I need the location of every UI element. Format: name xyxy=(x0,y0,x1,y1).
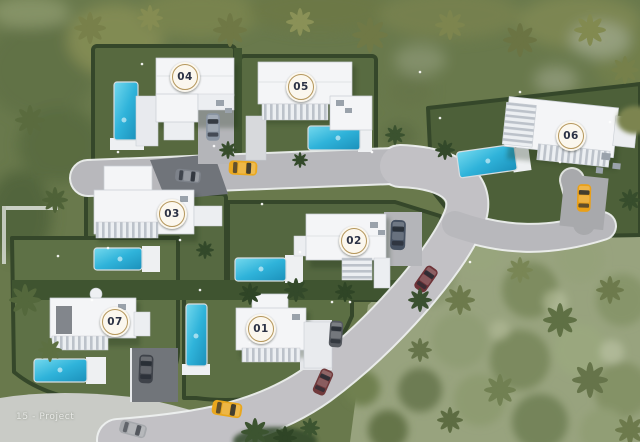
villa-badge-05-number: 05 xyxy=(293,82,308,93)
villa-badge-06: 06 xyxy=(556,121,586,151)
villa-badge-07: 07 xyxy=(100,307,130,337)
villa-badge-02: 02 xyxy=(339,226,369,256)
site-plan-render: 01 02 03 04 05 06 07 15 - Project xyxy=(0,0,640,442)
car-blue-villa02 xyxy=(390,220,406,251)
car-yellow-villa06 xyxy=(577,184,592,212)
aerial-scene xyxy=(0,0,640,442)
car-yellow-road-top xyxy=(228,160,257,176)
car-steel-villa04 xyxy=(206,113,220,141)
villa-badge-03-number: 03 xyxy=(164,209,179,220)
villa-badge-07-number: 07 xyxy=(107,317,122,328)
watermark-text: 15 - Project xyxy=(16,412,74,422)
villa-badge-06-number: 06 xyxy=(563,131,578,142)
car-gray-villa03 xyxy=(175,168,202,183)
villa-badge-04: 04 xyxy=(170,62,200,92)
villa-badge-05: 05 xyxy=(286,72,316,102)
villa-badge-04-number: 04 xyxy=(177,72,192,83)
villa-badge-02-number: 02 xyxy=(346,236,361,247)
villa-badge-01-number: 01 xyxy=(253,324,268,335)
pool-villa-07 xyxy=(34,357,106,384)
car-suv-villa07 xyxy=(138,355,153,384)
villa-badge-03: 03 xyxy=(157,199,187,229)
pool-villa-02 xyxy=(235,255,303,283)
villa-badge-01: 01 xyxy=(246,314,276,344)
car-gray-road-villa01 xyxy=(328,320,343,347)
pool-villa-03 xyxy=(94,246,160,272)
pool-villa-01 xyxy=(182,304,210,375)
